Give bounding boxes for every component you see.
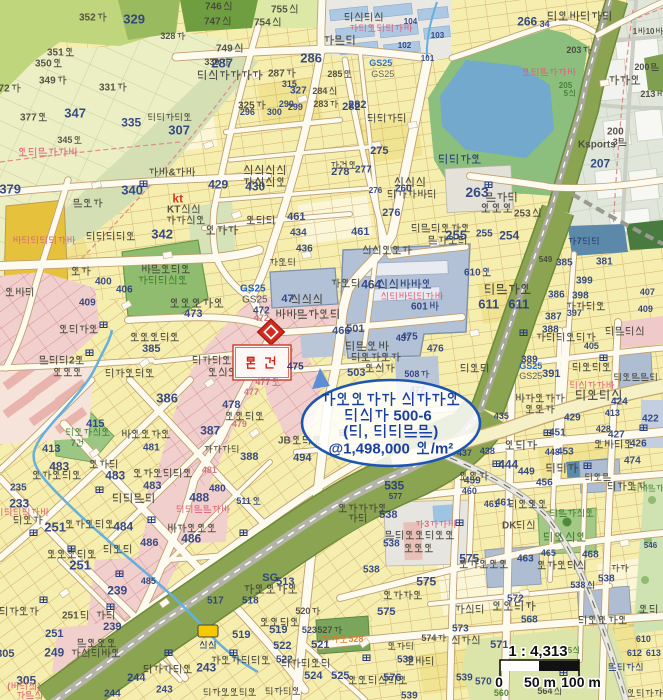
svg-text:251: 251 <box>45 628 63 640</box>
svg-text:415: 415 <box>86 418 104 430</box>
svg-text:451: 451 <box>549 428 566 439</box>
svg-text:749: 749 <box>216 44 233 55</box>
svg-text:413: 413 <box>605 408 620 418</box>
svg-text:260: 260 <box>395 184 412 195</box>
svg-text:KT: KT <box>167 205 180 216</box>
svg-text:305: 305 <box>0 648 14 660</box>
svg-text:468: 468 <box>582 550 599 561</box>
svg-text:508: 508 <box>404 369 419 379</box>
svg-text:575: 575 <box>416 574 436 588</box>
svg-text:484: 484 <box>113 519 133 533</box>
svg-text:612: 612 <box>627 648 642 658</box>
svg-text:GS25: GS25 <box>519 371 542 381</box>
svg-text:430: 430 <box>245 179 265 193</box>
svg-text:GS25: GS25 <box>371 69 394 79</box>
svg-text:535: 535 <box>384 478 404 492</box>
svg-text:328: 328 <box>160 31 175 41</box>
svg-text:398: 398 <box>572 291 589 302</box>
svg-text:379: 379 <box>0 182 21 197</box>
svg-text:522: 522 <box>276 655 293 666</box>
svg-text:478: 478 <box>222 399 240 411</box>
svg-text:213: 213 <box>640 89 655 99</box>
svg-text:331: 331 <box>99 83 116 94</box>
svg-text:518: 518 <box>242 596 259 607</box>
svg-text:2: 2 <box>69 356 75 367</box>
svg-text:570: 570 <box>475 677 492 688</box>
svg-text:519: 519 <box>269 624 287 636</box>
svg-text:539: 539 <box>401 691 418 700</box>
svg-text:102: 102 <box>398 41 412 50</box>
svg-text:352: 352 <box>79 13 96 24</box>
svg-text:456: 456 <box>536 478 553 489</box>
svg-text:572: 572 <box>507 594 524 605</box>
svg-text:387: 387 <box>545 312 562 323</box>
svg-text:610: 610 <box>464 268 481 279</box>
svg-text:JB: JB <box>278 436 291 447</box>
svg-text:251: 251 <box>44 520 66 535</box>
svg-text:494: 494 <box>293 452 312 464</box>
svg-text:385: 385 <box>142 343 160 355</box>
svg-text:576: 576 <box>383 672 401 684</box>
svg-text:613: 613 <box>646 648 661 658</box>
svg-text:611: 611 <box>508 297 529 312</box>
svg-text:511: 511 <box>236 496 251 506</box>
svg-text:282: 282 <box>348 99 366 111</box>
svg-text:571: 571 <box>490 639 508 651</box>
svg-text:524: 524 <box>304 670 323 682</box>
svg-text:287: 287 <box>268 69 285 80</box>
svg-text:335: 335 <box>121 115 141 129</box>
svg-text:538: 538 <box>383 539 400 550</box>
svg-text:277: 277 <box>355 165 372 176</box>
svg-text:&: & <box>169 168 176 179</box>
svg-text:611: 611 <box>478 297 499 312</box>
svg-text:0: 0 <box>495 674 503 690</box>
svg-text:266: 266 <box>517 14 537 28</box>
svg-text:407: 407 <box>640 287 655 297</box>
svg-text:436: 436 <box>296 244 313 255</box>
svg-text:5: 5 <box>568 646 573 655</box>
svg-text:474: 474 <box>624 456 641 467</box>
svg-text:391: 391 <box>542 368 560 380</box>
svg-text:575: 575 <box>377 606 395 618</box>
svg-text:351: 351 <box>47 48 64 59</box>
svg-text:251: 251 <box>62 611 79 622</box>
svg-text:429: 429 <box>564 413 581 424</box>
svg-text:249: 249 <box>44 645 64 659</box>
svg-text:488: 488 <box>189 490 209 504</box>
svg-text:448: 448 <box>545 447 560 457</box>
svg-text:381: 381 <box>596 257 613 268</box>
svg-text:528: 528 <box>348 634 363 644</box>
svg-text:203: 203 <box>566 45 581 55</box>
svg-text:522: 522 <box>273 640 291 652</box>
svg-text:307: 307 <box>168 123 190 138</box>
svg-text:276: 276 <box>382 207 400 219</box>
svg-text:429: 429 <box>208 177 228 191</box>
svg-text:386: 386 <box>548 290 565 301</box>
svg-text:461: 461 <box>351 226 369 238</box>
svg-text:400: 400 <box>95 277 112 288</box>
svg-text:284: 284 <box>312 86 327 96</box>
svg-text:239: 239 <box>107 583 127 597</box>
svg-text:103: 103 <box>431 31 445 40</box>
svg-text:405: 405 <box>584 341 599 351</box>
svg-text:349: 349 <box>39 76 56 87</box>
svg-text:574: 574 <box>421 633 436 643</box>
svg-text:286: 286 <box>300 51 322 66</box>
svg-text:573: 573 <box>452 624 469 635</box>
svg-text:477: 477 <box>244 387 259 397</box>
svg-text:473: 473 <box>184 308 202 320</box>
svg-text:387: 387 <box>200 423 220 437</box>
svg-text:538: 538 <box>598 574 615 585</box>
svg-text:438: 438 <box>480 446 495 456</box>
svg-text:300: 300 <box>267 107 282 117</box>
svg-text:475: 475 <box>287 362 304 373</box>
svg-text:538: 538 <box>363 565 380 576</box>
svg-text:): ) <box>38 681 41 691</box>
svg-text:539: 539 <box>397 655 414 666</box>
svg-text:755: 755 <box>271 5 288 16</box>
svg-text:538: 538 <box>379 509 397 521</box>
svg-text:601: 601 <box>411 302 428 313</box>
svg-text:460: 460 <box>462 486 477 496</box>
svg-text:549: 549 <box>539 255 553 264</box>
svg-text:568: 568 <box>521 615 538 626</box>
svg-text:3: 3 <box>424 519 429 529</box>
svg-text:kt: kt <box>172 191 183 205</box>
svg-text:481: 481 <box>143 443 160 454</box>
svg-text:523: 523 <box>302 625 317 635</box>
svg-text:255: 255 <box>445 228 467 243</box>
svg-text:296: 296 <box>240 107 255 117</box>
svg-text:329: 329 <box>123 12 145 27</box>
svg-text:243: 243 <box>156 685 173 696</box>
svg-text:461: 461 <box>484 499 499 509</box>
svg-text:479: 479 <box>232 419 247 429</box>
svg-text:104: 104 <box>404 17 418 26</box>
svg-text:239: 239 <box>103 621 121 633</box>
svg-text:463: 463 <box>517 554 534 565</box>
svg-text:464: 464 <box>361 277 381 291</box>
svg-text:10: 10 <box>646 27 655 36</box>
svg-text:(: ( <box>7 681 10 691</box>
svg-text:GS25: GS25 <box>242 295 268 306</box>
svg-text:GS25: GS25 <box>369 58 392 68</box>
svg-text:251: 251 <box>69 558 91 573</box>
svg-text:275: 275 <box>370 145 388 157</box>
svg-text:1: 1 <box>633 27 638 36</box>
svg-text:472: 472 <box>254 313 269 323</box>
svg-text:7: 7 <box>71 438 76 448</box>
svg-text:347: 347 <box>64 106 86 121</box>
svg-text:315: 315 <box>282 79 297 89</box>
svg-text:480: 480 <box>209 484 226 495</box>
svg-text:(: ( <box>343 423 348 440</box>
svg-text:444: 444 <box>498 457 518 471</box>
svg-text:253: 253 <box>514 209 531 220</box>
svg-text:525: 525 <box>331 670 349 682</box>
svg-text:DK: DK <box>502 521 517 532</box>
svg-text:521: 521 <box>311 639 329 651</box>
svg-text:244: 244 <box>127 672 146 684</box>
svg-text:200: 200 <box>607 127 624 138</box>
svg-text:299: 299 <box>288 102 303 112</box>
svg-text:424: 424 <box>611 397 628 408</box>
svg-text:100 m: 100 m <box>561 674 601 690</box>
svg-text:243: 243 <box>196 660 216 674</box>
svg-text:486: 486 <box>181 531 201 545</box>
svg-text:,: , <box>364 423 372 440</box>
svg-text:287: 287 <box>211 56 233 71</box>
svg-text:1 : 4,313: 1 : 4,313 <box>508 643 567 660</box>
svg-text:610: 610 <box>636 634 651 644</box>
svg-text:428: 428 <box>596 424 611 434</box>
svg-text:481: 481 <box>202 465 217 475</box>
svg-text:466: 466 <box>332 325 350 337</box>
svg-text:459: 459 <box>464 476 481 487</box>
svg-text:388: 388 <box>240 451 258 463</box>
svg-text:477: 477 <box>255 377 270 387</box>
svg-text:409: 409 <box>79 298 96 309</box>
svg-text:406: 406 <box>116 285 133 296</box>
svg-text:): ) <box>433 423 438 440</box>
svg-text:449: 449 <box>518 467 535 478</box>
svg-text:409: 409 <box>638 304 653 314</box>
svg-text:519: 519 <box>232 629 250 641</box>
svg-text:483: 483 <box>143 480 161 492</box>
svg-text:34: 34 <box>540 19 550 29</box>
svg-text:244: 244 <box>104 689 121 700</box>
svg-text:513: 513 <box>276 576 294 588</box>
svg-text:422: 422 <box>642 414 659 425</box>
svg-text:413: 413 <box>42 443 60 455</box>
svg-text:GS25: GS25 <box>240 284 266 295</box>
svg-text:527: 527 <box>317 625 332 635</box>
svg-text:200: 200 <box>634 62 649 72</box>
svg-text:377: 377 <box>20 113 37 124</box>
svg-text:283: 283 <box>313 99 328 109</box>
svg-text:Ksports: Ksports <box>578 140 616 151</box>
svg-text:546: 546 <box>644 541 658 550</box>
svg-text:485: 485 <box>141 576 156 586</box>
svg-text:345: 345 <box>57 135 72 145</box>
svg-text:5: 5 <box>564 89 569 98</box>
svg-text:435: 435 <box>494 411 509 421</box>
svg-text:426: 426 <box>630 439 647 450</box>
svg-text:538: 538 <box>570 580 585 590</box>
svg-text:285: 285 <box>327 69 342 79</box>
svg-text:GS25: GS25 <box>519 361 542 371</box>
svg-text:747: 747 <box>204 17 221 28</box>
svg-text:7: 7 <box>577 236 582 246</box>
svg-text:476: 476 <box>427 344 444 355</box>
svg-text:350: 350 <box>35 59 52 70</box>
svg-text:47: 47 <box>281 293 293 305</box>
svg-text:399: 399 <box>576 276 593 287</box>
svg-text:483: 483 <box>105 468 125 482</box>
svg-text:577: 577 <box>389 492 403 501</box>
svg-text:539: 539 <box>456 673 473 684</box>
svg-text:255: 255 <box>476 229 493 240</box>
svg-text:503: 503 <box>347 367 365 379</box>
svg-text:276: 276 <box>369 186 383 195</box>
svg-text:/m²: /m² <box>431 440 454 457</box>
svg-text:207: 207 <box>590 156 610 170</box>
svg-text:235: 235 <box>10 483 27 494</box>
svg-text:50 m: 50 m <box>524 674 556 690</box>
svg-text:754: 754 <box>254 18 271 29</box>
svg-text:465: 465 <box>541 548 556 558</box>
svg-text:500-6: 500-6 <box>389 407 432 424</box>
svg-text:@1,498,000: @1,498,000 <box>329 440 410 457</box>
svg-text:385: 385 <box>556 258 573 269</box>
svg-text:386: 386 <box>156 391 178 406</box>
svg-text:342: 342 <box>151 227 173 242</box>
svg-text:397: 397 <box>567 308 582 318</box>
svg-text:486: 486 <box>140 537 158 549</box>
svg-text:475: 475 <box>401 332 418 343</box>
svg-text:101: 101 <box>421 54 435 63</box>
svg-text:434: 434 <box>290 228 307 239</box>
svg-text:372: 372 <box>0 84 10 95</box>
svg-text:520: 520 <box>295 606 310 616</box>
svg-text:746: 746 <box>205 2 222 13</box>
svg-text:461: 461 <box>287 211 305 223</box>
svg-text:517: 517 <box>207 596 224 607</box>
svg-text:254: 254 <box>499 228 519 242</box>
